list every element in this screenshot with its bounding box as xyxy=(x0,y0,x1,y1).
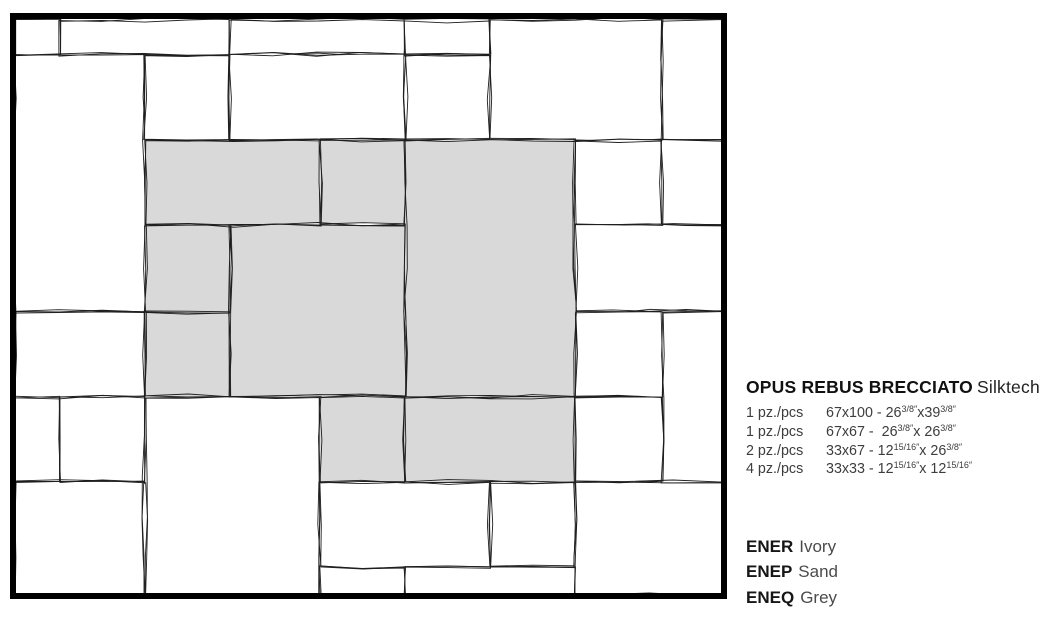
color-row: ENEQGrey xyxy=(746,585,1046,610)
tile xyxy=(229,52,406,140)
piece-size: 67x67 - 263/8″x 263/8″ xyxy=(826,423,1046,442)
tile xyxy=(660,139,724,225)
tile xyxy=(404,566,575,597)
tile xyxy=(59,396,145,485)
tile xyxy=(15,312,145,400)
color-code: ENEQ xyxy=(746,588,794,607)
piece-row: 4 pz./pcs 33x33 - 1215/16″x 1215/16″ xyxy=(746,460,1046,479)
tile xyxy=(230,19,407,55)
tile xyxy=(145,397,321,597)
piece-size: 33x33 - 1215/16″x 1215/16″ xyxy=(826,460,1046,479)
tile xyxy=(60,19,229,57)
tile-highlighted xyxy=(404,138,577,398)
piece-size: 67x100 - 263/8″x393/8″ xyxy=(826,404,1046,423)
tile-highlighted xyxy=(230,224,406,396)
tile xyxy=(320,481,491,570)
piece-qty: 1 pz./pcs xyxy=(746,404,826,423)
piece-size: 33x67 - 1215/16″x 263/8″ xyxy=(826,442,1046,461)
piece-qty: 2 pz./pcs xyxy=(746,442,826,461)
tile xyxy=(575,224,725,313)
tile xyxy=(489,19,664,141)
tile xyxy=(145,55,229,140)
tile xyxy=(574,139,666,225)
product-name: OPUS REBUS BRECCIATO xyxy=(746,377,973,397)
pattern-area xyxy=(0,0,740,630)
tile xyxy=(404,18,490,54)
product-finish: Silktech xyxy=(977,377,1040,397)
color-name: Grey xyxy=(800,588,837,607)
tile xyxy=(319,566,406,596)
tile-highlighted xyxy=(403,397,577,484)
tile xyxy=(14,396,61,483)
spec-sheet: OPUS REBUS BRECCIATOSilktech 1 pz./pcs 6… xyxy=(0,0,1052,630)
tile xyxy=(661,19,723,141)
tile xyxy=(15,19,61,56)
color-code: ENER xyxy=(746,537,793,556)
tile-highlighted xyxy=(145,225,231,313)
piece-qty: 4 pz./pcs xyxy=(746,460,826,479)
product-info-panel: OPUS REBUS BRECCIATOSilktech 1 pz./pcs 6… xyxy=(746,377,1046,479)
tile-pattern-diagram xyxy=(0,0,740,630)
piece-row: 1 pz./pcs 67x67 - 263/8″x 263/8″ xyxy=(746,423,1046,442)
tile xyxy=(661,312,725,484)
piece-qty: 1 pz./pcs xyxy=(746,423,826,442)
color-code: ENEP xyxy=(746,562,792,581)
piece-row: 1 pz./pcs 67x100 - 263/8″x393/8″ xyxy=(746,404,1046,423)
tile xyxy=(575,312,663,398)
page-title: OPUS REBUS BRECCIATOSilktech xyxy=(746,377,1046,398)
piece-row: 2 pz./pcs 33x67 - 1215/16″x 263/8″ xyxy=(746,442,1046,461)
tile-highlighted xyxy=(319,140,406,224)
pieces-legend: 1 pz./pcs 67x100 - 263/8″x393/8″ 1 pz./p… xyxy=(746,404,1046,479)
tile-highlighted xyxy=(319,395,405,484)
tile xyxy=(13,481,145,596)
color-name: Ivory xyxy=(799,537,836,556)
tile xyxy=(573,396,664,484)
tile-highlighted xyxy=(144,311,229,397)
color-name: Sand xyxy=(798,562,838,581)
tile xyxy=(491,481,576,566)
tile-highlighted xyxy=(145,139,321,226)
tile xyxy=(404,55,492,140)
tile xyxy=(14,53,147,314)
color-row: ENERIvory xyxy=(746,534,1046,559)
tile xyxy=(574,482,723,597)
color-row: ENEPSand xyxy=(746,559,1046,584)
color-codes: ENERIvory ENEPSand ENEQGrey xyxy=(746,534,1046,610)
